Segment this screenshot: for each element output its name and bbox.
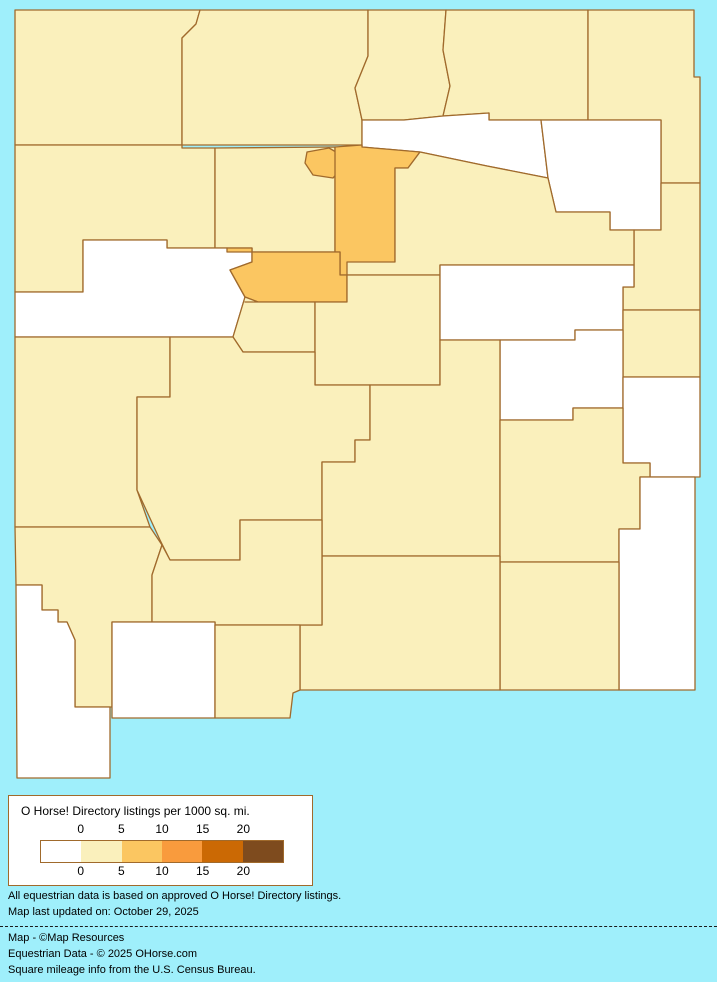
legend-tick-label: 5 xyxy=(118,864,125,878)
note-last-updated: Map last updated on: October 29, 2025 xyxy=(8,906,199,918)
county-eddy xyxy=(500,562,619,690)
county-de-baca xyxy=(500,330,623,420)
county-roosevelt xyxy=(623,377,700,477)
county-otero xyxy=(300,556,500,690)
legend-swatch-5 xyxy=(243,841,283,862)
legend-swatch-1 xyxy=(81,841,121,862)
legend-tick-label: 10 xyxy=(155,864,168,878)
county-taos xyxy=(355,10,450,120)
credit-map-resources: Map - ©Map Resources xyxy=(8,932,124,944)
legend-tick-label: 0 xyxy=(77,822,84,836)
legend-swatch-4 xyxy=(202,841,242,862)
credit-equestrian-data: Equestrian Data - © 2025 OHorse.com xyxy=(8,948,197,960)
credit-census-bureau: Square mileage info from the U.S. Census… xyxy=(8,964,256,976)
county-curry xyxy=(623,310,700,377)
county-colfax xyxy=(443,10,588,120)
note-data-source: All equestrian data is based on approved… xyxy=(8,890,341,902)
county-rio-arriba xyxy=(182,10,368,145)
page: { "map": { "region": "New Mexico countie… xyxy=(0,0,717,982)
county-san-juan xyxy=(15,10,200,145)
legend-box: O Horse! Directory listings per 1000 sq.… xyxy=(8,795,313,886)
legend-tick-label: 20 xyxy=(237,864,250,878)
county-guadalupe xyxy=(440,265,634,340)
county-dona-ana xyxy=(215,625,300,718)
legend-tick-label: 20 xyxy=(237,822,250,836)
new-mexico-county-map xyxy=(0,0,717,790)
legend-color-ramp xyxy=(40,840,284,863)
dashed-separator xyxy=(0,926,717,927)
county-valencia xyxy=(233,297,315,352)
legend-tick-label: 15 xyxy=(196,864,209,878)
legend-title: O Horse! Directory listings per 1000 sq.… xyxy=(21,804,250,818)
county-luna xyxy=(112,622,215,718)
legend-swatch-3 xyxy=(162,841,202,862)
legend-tick-label: 0 xyxy=(77,864,84,878)
legend-swatch-0 xyxy=(41,841,81,862)
legend-ticks-top: 05101520 xyxy=(9,822,312,836)
legend-tick-label: 15 xyxy=(196,822,209,836)
legend-tick-label: 10 xyxy=(155,822,168,836)
legend-tick-label: 5 xyxy=(118,822,125,836)
legend-ticks-bottom: 05101520 xyxy=(9,864,312,878)
legend-swatch-2 xyxy=(122,841,162,862)
